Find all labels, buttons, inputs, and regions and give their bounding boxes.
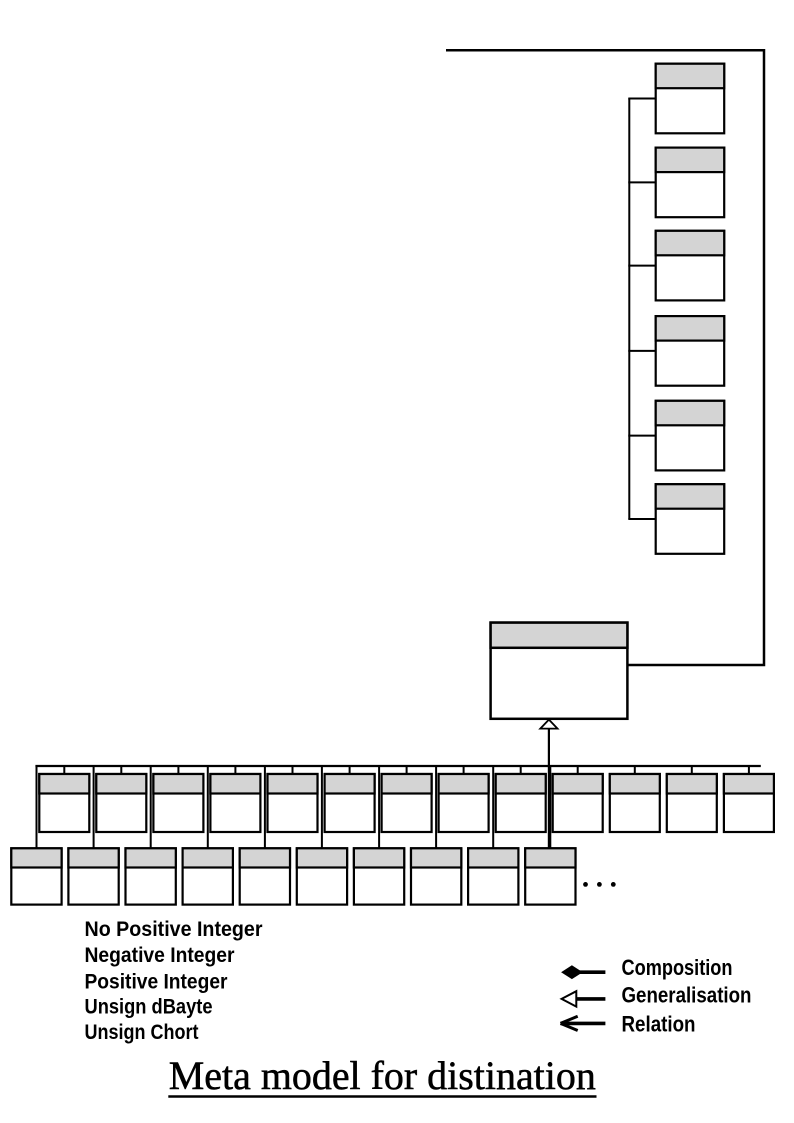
- svg-text:Generalisation: Generalisation: [622, 983, 752, 1008]
- svg-text:Meta model for distination: Meta model for distination: [169, 1053, 596, 1098]
- svg-text:Unsign dBayte: Unsign dBayte: [85, 996, 213, 1019]
- svg-text:No Positive Integer: No Positive Integer: [85, 918, 263, 941]
- svg-text:Unsign Chort: Unsign Chort: [85, 1021, 199, 1044]
- svg-text:Composition: Composition: [622, 955, 733, 980]
- svg-text:Negative Integer: Negative Integer: [85, 944, 235, 967]
- svg-text:Positive Integer: Positive Integer: [85, 970, 228, 993]
- svg-text:Relation: Relation: [622, 1011, 696, 1036]
